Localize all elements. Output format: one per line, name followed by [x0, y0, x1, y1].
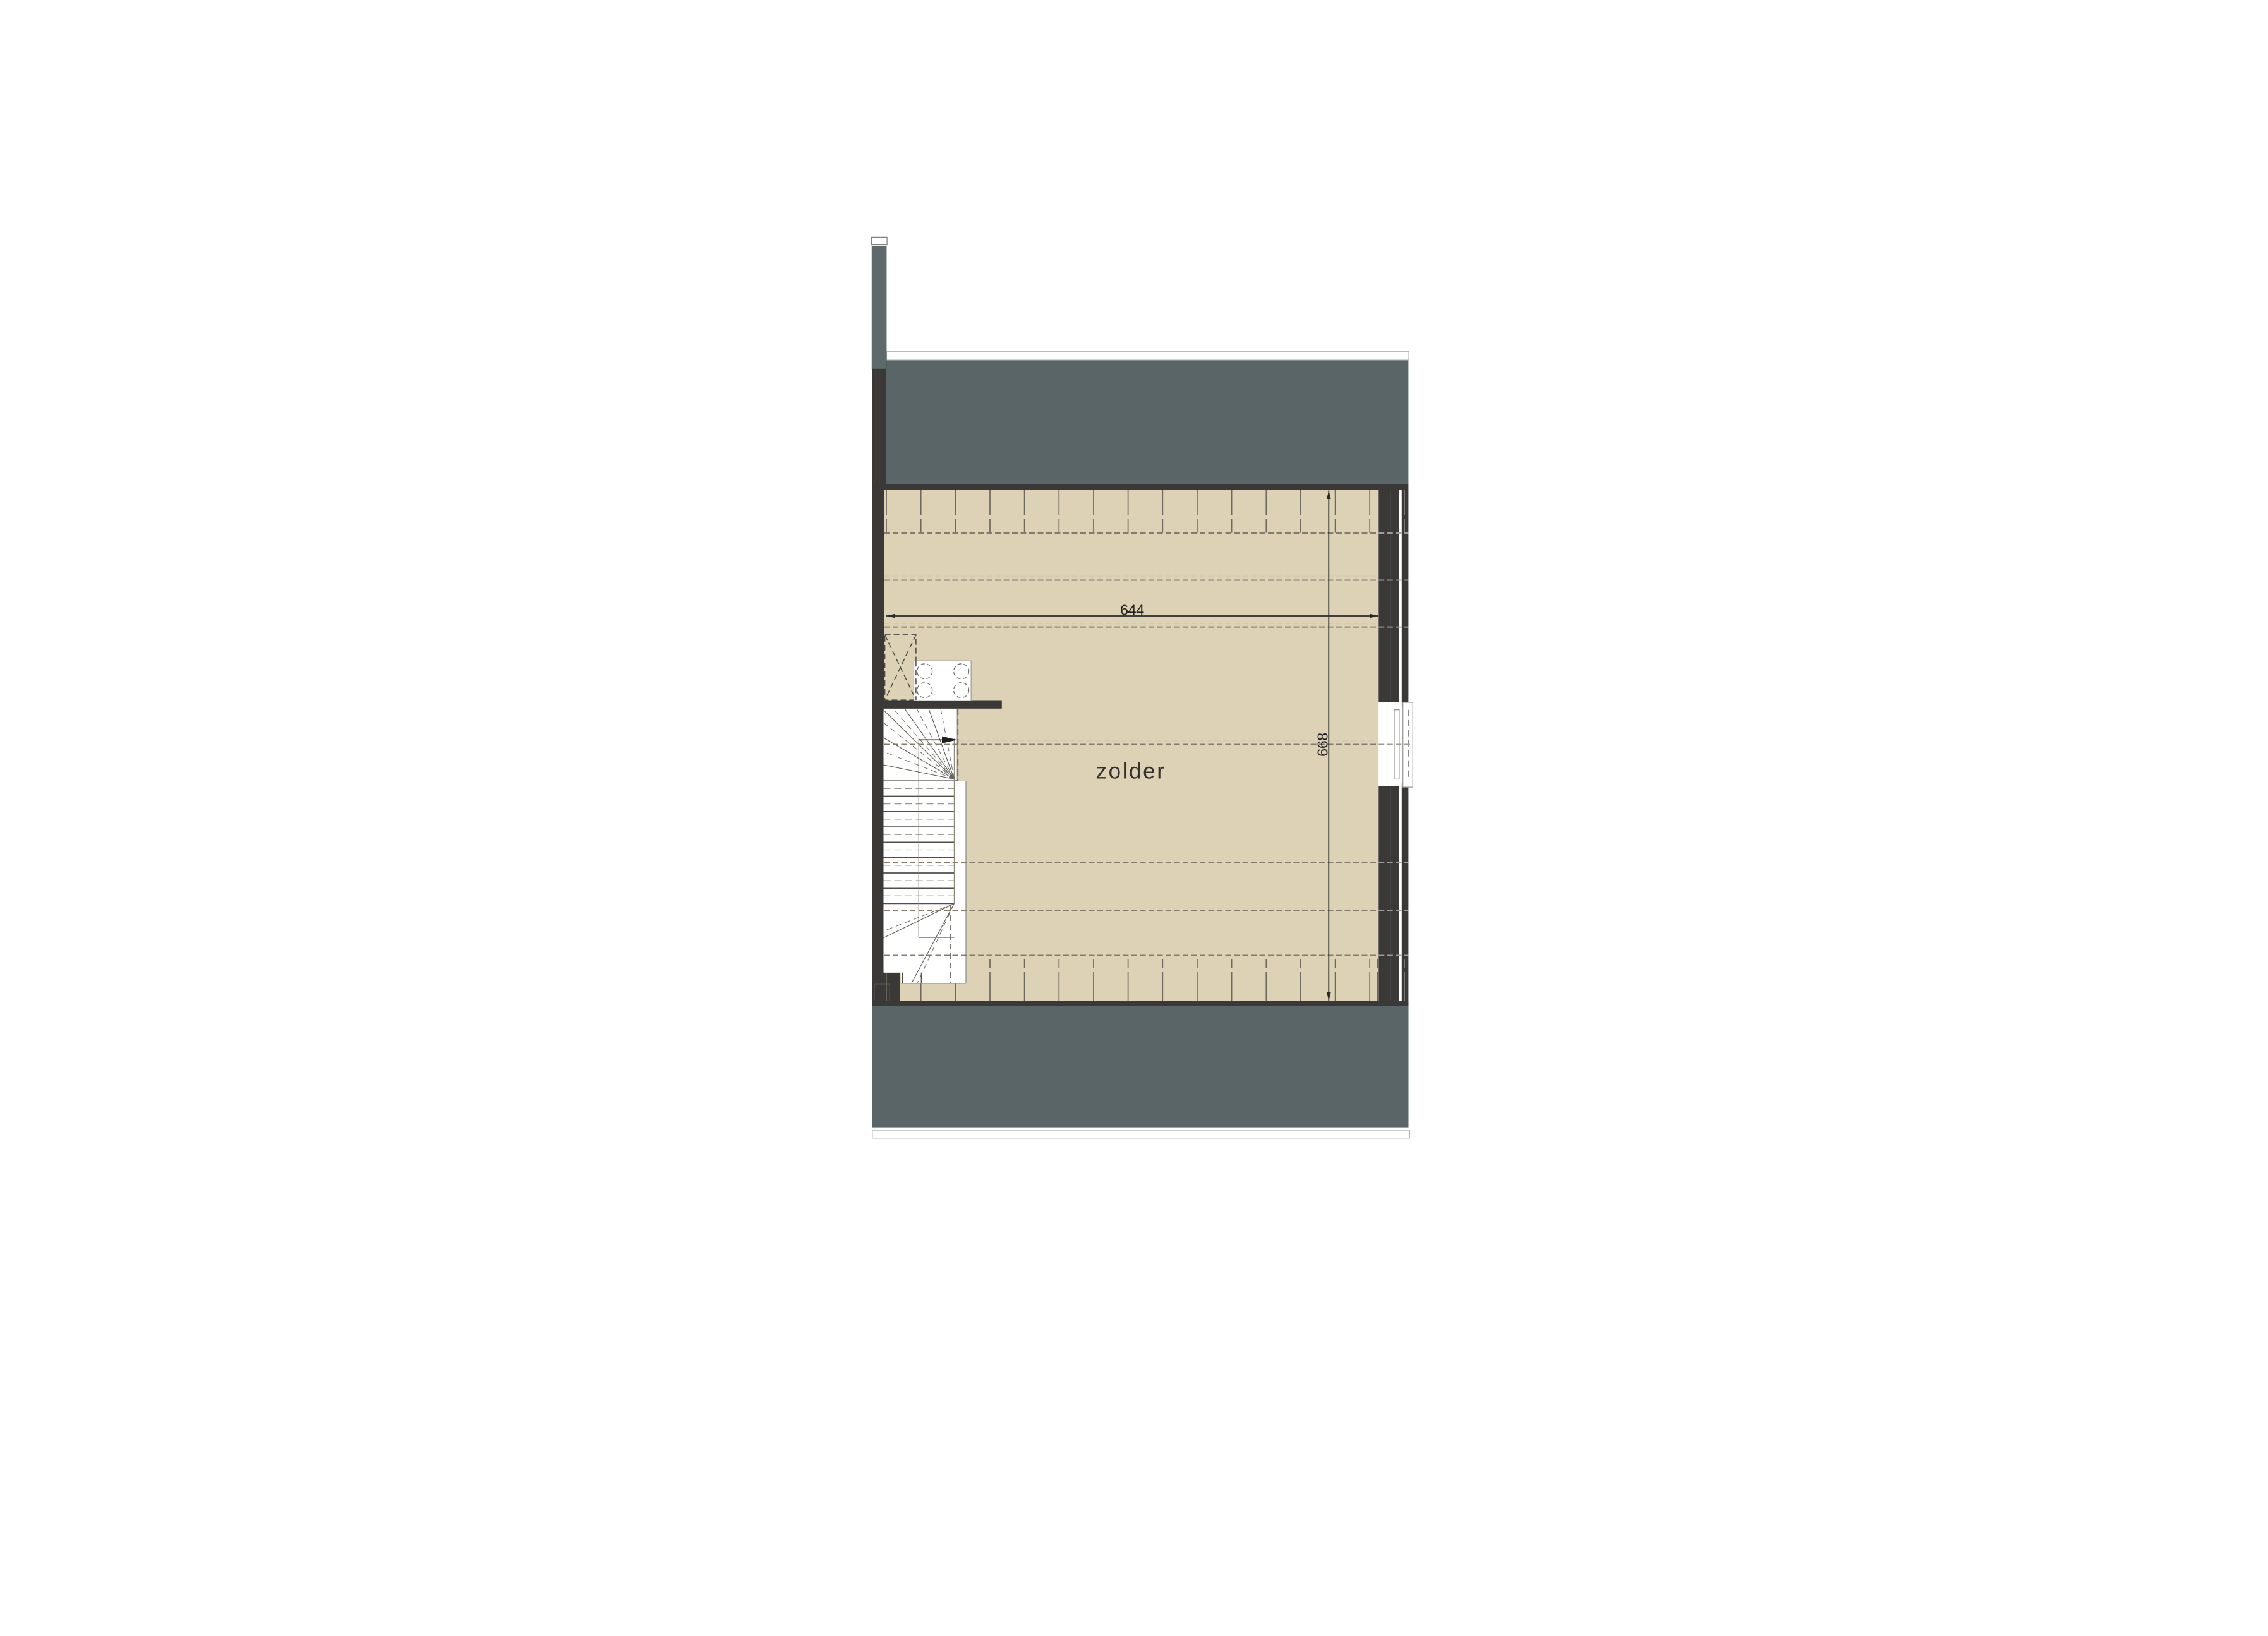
- svg-text:668: 668: [1315, 733, 1331, 757]
- svg-text:zolder: zolder: [1096, 759, 1166, 783]
- svg-text:644: 644: [1120, 602, 1144, 618]
